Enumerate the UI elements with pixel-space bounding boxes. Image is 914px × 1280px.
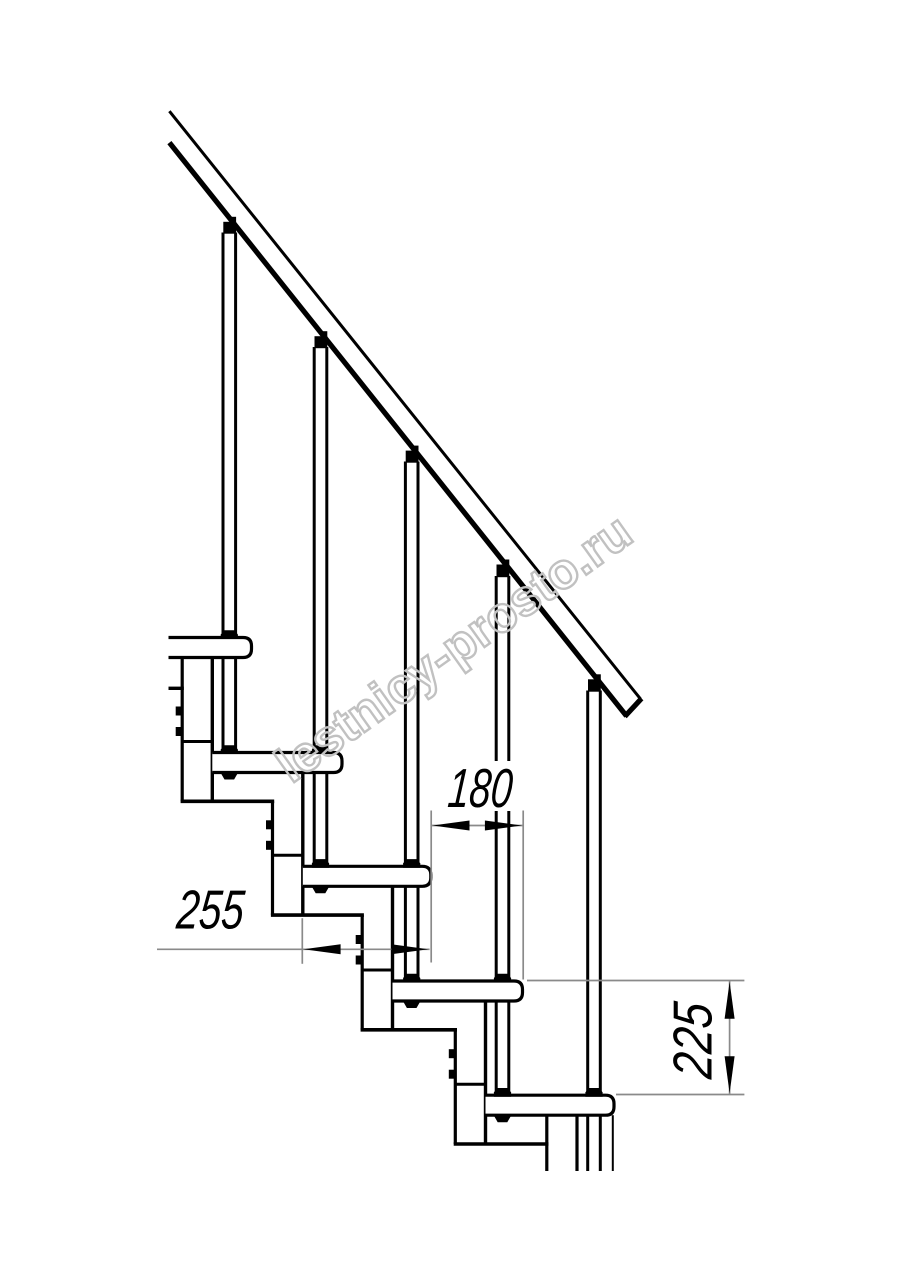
svg-text:180: 180 bbox=[446, 758, 516, 819]
svg-text:225: 225 bbox=[661, 998, 723, 1081]
svg-text:lestnicy-prosto.ru: lestnicy-prosto.ru bbox=[265, 503, 642, 793]
svg-text:255: 255 bbox=[174, 879, 247, 941]
